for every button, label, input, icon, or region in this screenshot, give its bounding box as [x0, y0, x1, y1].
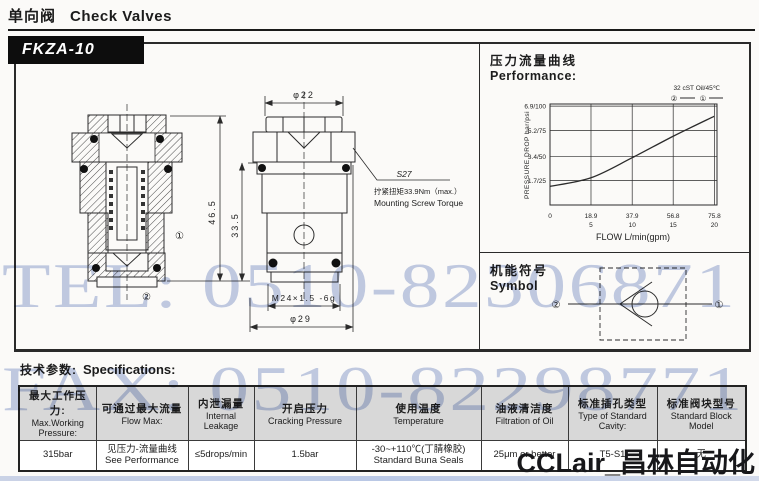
legend-curve2: ②	[671, 94, 678, 103]
page-title-en: Check Valves	[70, 8, 172, 25]
chart-ylabel: PRESSURE DROP bar/psi	[524, 111, 531, 199]
svg-text:56.8: 56.8	[667, 213, 680, 220]
svg-text:10: 10	[629, 222, 637, 229]
external-view: φ22 M24×1.5 -6g φ29 S27 拧紧扭矩33.9Nm（max.）…	[250, 90, 463, 332]
svg-text:15: 15	[670, 222, 678, 229]
spec-col-cracking-pressure: 开启压力Cracking Pressure	[254, 386, 356, 440]
performance-title-cn: 压力流量曲线	[490, 50, 577, 69]
performance-section-title: 压力流量曲线 Performance:	[490, 50, 577, 83]
dim-phi29: φ29	[290, 314, 312, 324]
symbol-title-en: Symbol	[490, 279, 548, 293]
legend-oil: 32 cST Oil/45℃	[673, 85, 720, 92]
spec-col-cavity: 标准插孔类型Type of Standard Cavity:	[568, 386, 657, 440]
watermark-brand: CCLair_昌林自动化	[516, 441, 755, 480]
spec-col-internal-leakage: 内泄漏量Internal Leakage	[188, 386, 254, 440]
spec-value-flow-max: 见压力-流量曲线See Performance	[96, 440, 188, 471]
chart-labels: PRESSURE DROP bar/psi FLOW L/min(gpm) 32…	[524, 85, 723, 242]
chart-xlabel: FLOW L/min(gpm)	[596, 232, 670, 242]
header-rule	[8, 29, 755, 31]
spec-col-temperature: 使用温度Temperature	[356, 386, 481, 440]
svg-text:75.8: 75.8	[708, 213, 721, 220]
cutaway-view: ① ②	[72, 104, 184, 303]
wrench-size-label: S27	[396, 169, 411, 179]
dim-46-5: 46.5	[207, 199, 217, 225]
symbol-title-cn: 机能符号	[490, 260, 548, 279]
spec-col-filtration: 油液清洁度Filtration of Oil	[481, 386, 568, 440]
model-label: FKZA-10	[8, 36, 144, 64]
svg-text:0: 0	[548, 213, 552, 220]
spec-value-internal-leakage: ≤5drops/min	[188, 440, 254, 471]
svg-text:18.9: 18.9	[585, 213, 598, 220]
symbol-section-title: 机能符号 Symbol	[490, 260, 548, 293]
performance-title-en: Performance:	[490, 69, 577, 83]
specs-title-en: Specifications:	[83, 362, 175, 377]
spec-col-block-model: 标准阀块型号Standard Block Model	[657, 386, 746, 440]
spec-value-cracking-pressure: 1.5bar	[254, 440, 356, 471]
symbol-port2: ②	[552, 300, 561, 311]
spec-col-flow-max: 可通过最大流量Flow Max:	[96, 386, 188, 440]
port2-label: ②	[142, 292, 151, 303]
check-valve-symbol: ② ①	[552, 268, 724, 340]
page-header: 单向阀Check Valves	[8, 5, 172, 26]
svg-text:5: 5	[589, 222, 593, 229]
specs-section-title: 技术参数:Specifications:	[20, 361, 175, 379]
svg-text:20: 20	[711, 222, 719, 229]
specs-title-cn: 技术参数:	[20, 363, 77, 377]
symbol-port1: ①	[715, 300, 724, 311]
svg-text:6.9/100: 6.9/100	[524, 104, 546, 111]
spec-value-temperature: -30~+110℃(丁腈橡胶)Standard Buna Seals	[356, 440, 481, 471]
torque-note-cn: 拧紧扭矩33.9Nm（max.）	[374, 186, 462, 196]
thread-spec: M24×1.5 -6g	[272, 293, 336, 303]
spec-col-max-working-pressure: 最大工作压力:Max.Working Pressure:	[19, 386, 96, 440]
dim-phi22: φ22	[293, 90, 315, 100]
torque-note-en: Mounting Screw Torque	[374, 198, 463, 208]
page-title-cn: 单向阀	[8, 8, 56, 25]
specs-header-row: 最大工作压力:Max.Working Pressure: 可通过最大流量Flow…	[19, 386, 746, 440]
svg-text:37.9: 37.9	[626, 213, 639, 220]
dim-33-5: 33.5	[230, 212, 240, 238]
port1-label: ①	[175, 231, 184, 242]
legend-curve1: ①	[700, 94, 707, 103]
performance-chart: 6.9/1005.2/753.4/501.7/25018.9537.91056.…	[524, 104, 721, 229]
spec-value-max-working-pressure: 315bar	[19, 440, 96, 471]
datasheet-page: TEL: 0510-82306871 FAX: 0510-82298771 CC…	[0, 0, 759, 481]
